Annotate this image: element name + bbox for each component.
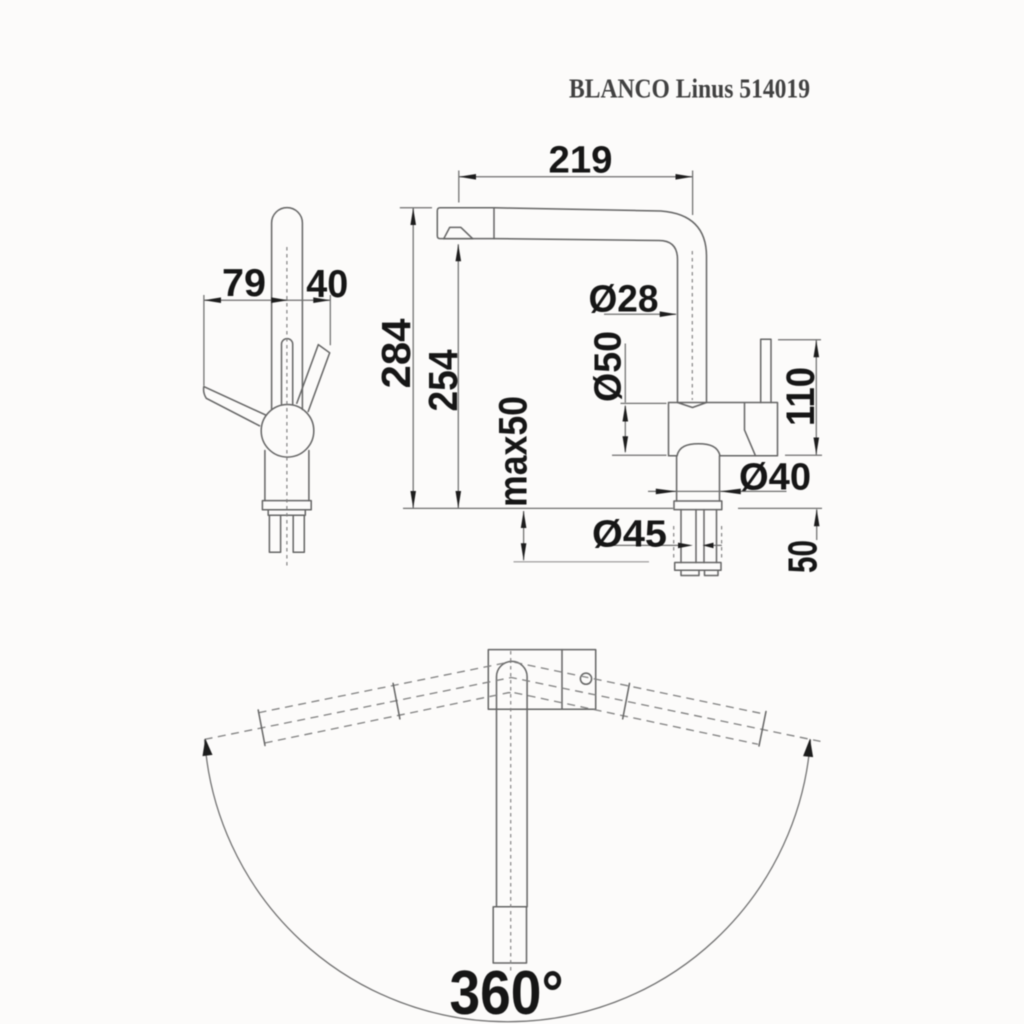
svg-text:50: 50	[780, 540, 826, 573]
svg-text:219: 219	[549, 140, 613, 182]
svg-text:Ø50: Ø50	[588, 331, 630, 402]
svg-text:Ø45: Ø45	[592, 514, 667, 556]
svg-text:360°: 360°	[450, 959, 564, 1024]
svg-text:max50: max50	[492, 396, 536, 507]
svg-text:BLANCO Linus 514019: BLANCO Linus 514019	[569, 74, 810, 104]
svg-text:79: 79	[222, 262, 266, 305]
svg-text:40: 40	[306, 263, 348, 306]
svg-text:Ø40: Ø40	[739, 457, 811, 499]
svg-text:254: 254	[420, 349, 466, 411]
svg-text:Ø28: Ø28	[589, 279, 659, 321]
svg-text:110: 110	[779, 367, 823, 426]
svg-text:284: 284	[373, 318, 419, 388]
